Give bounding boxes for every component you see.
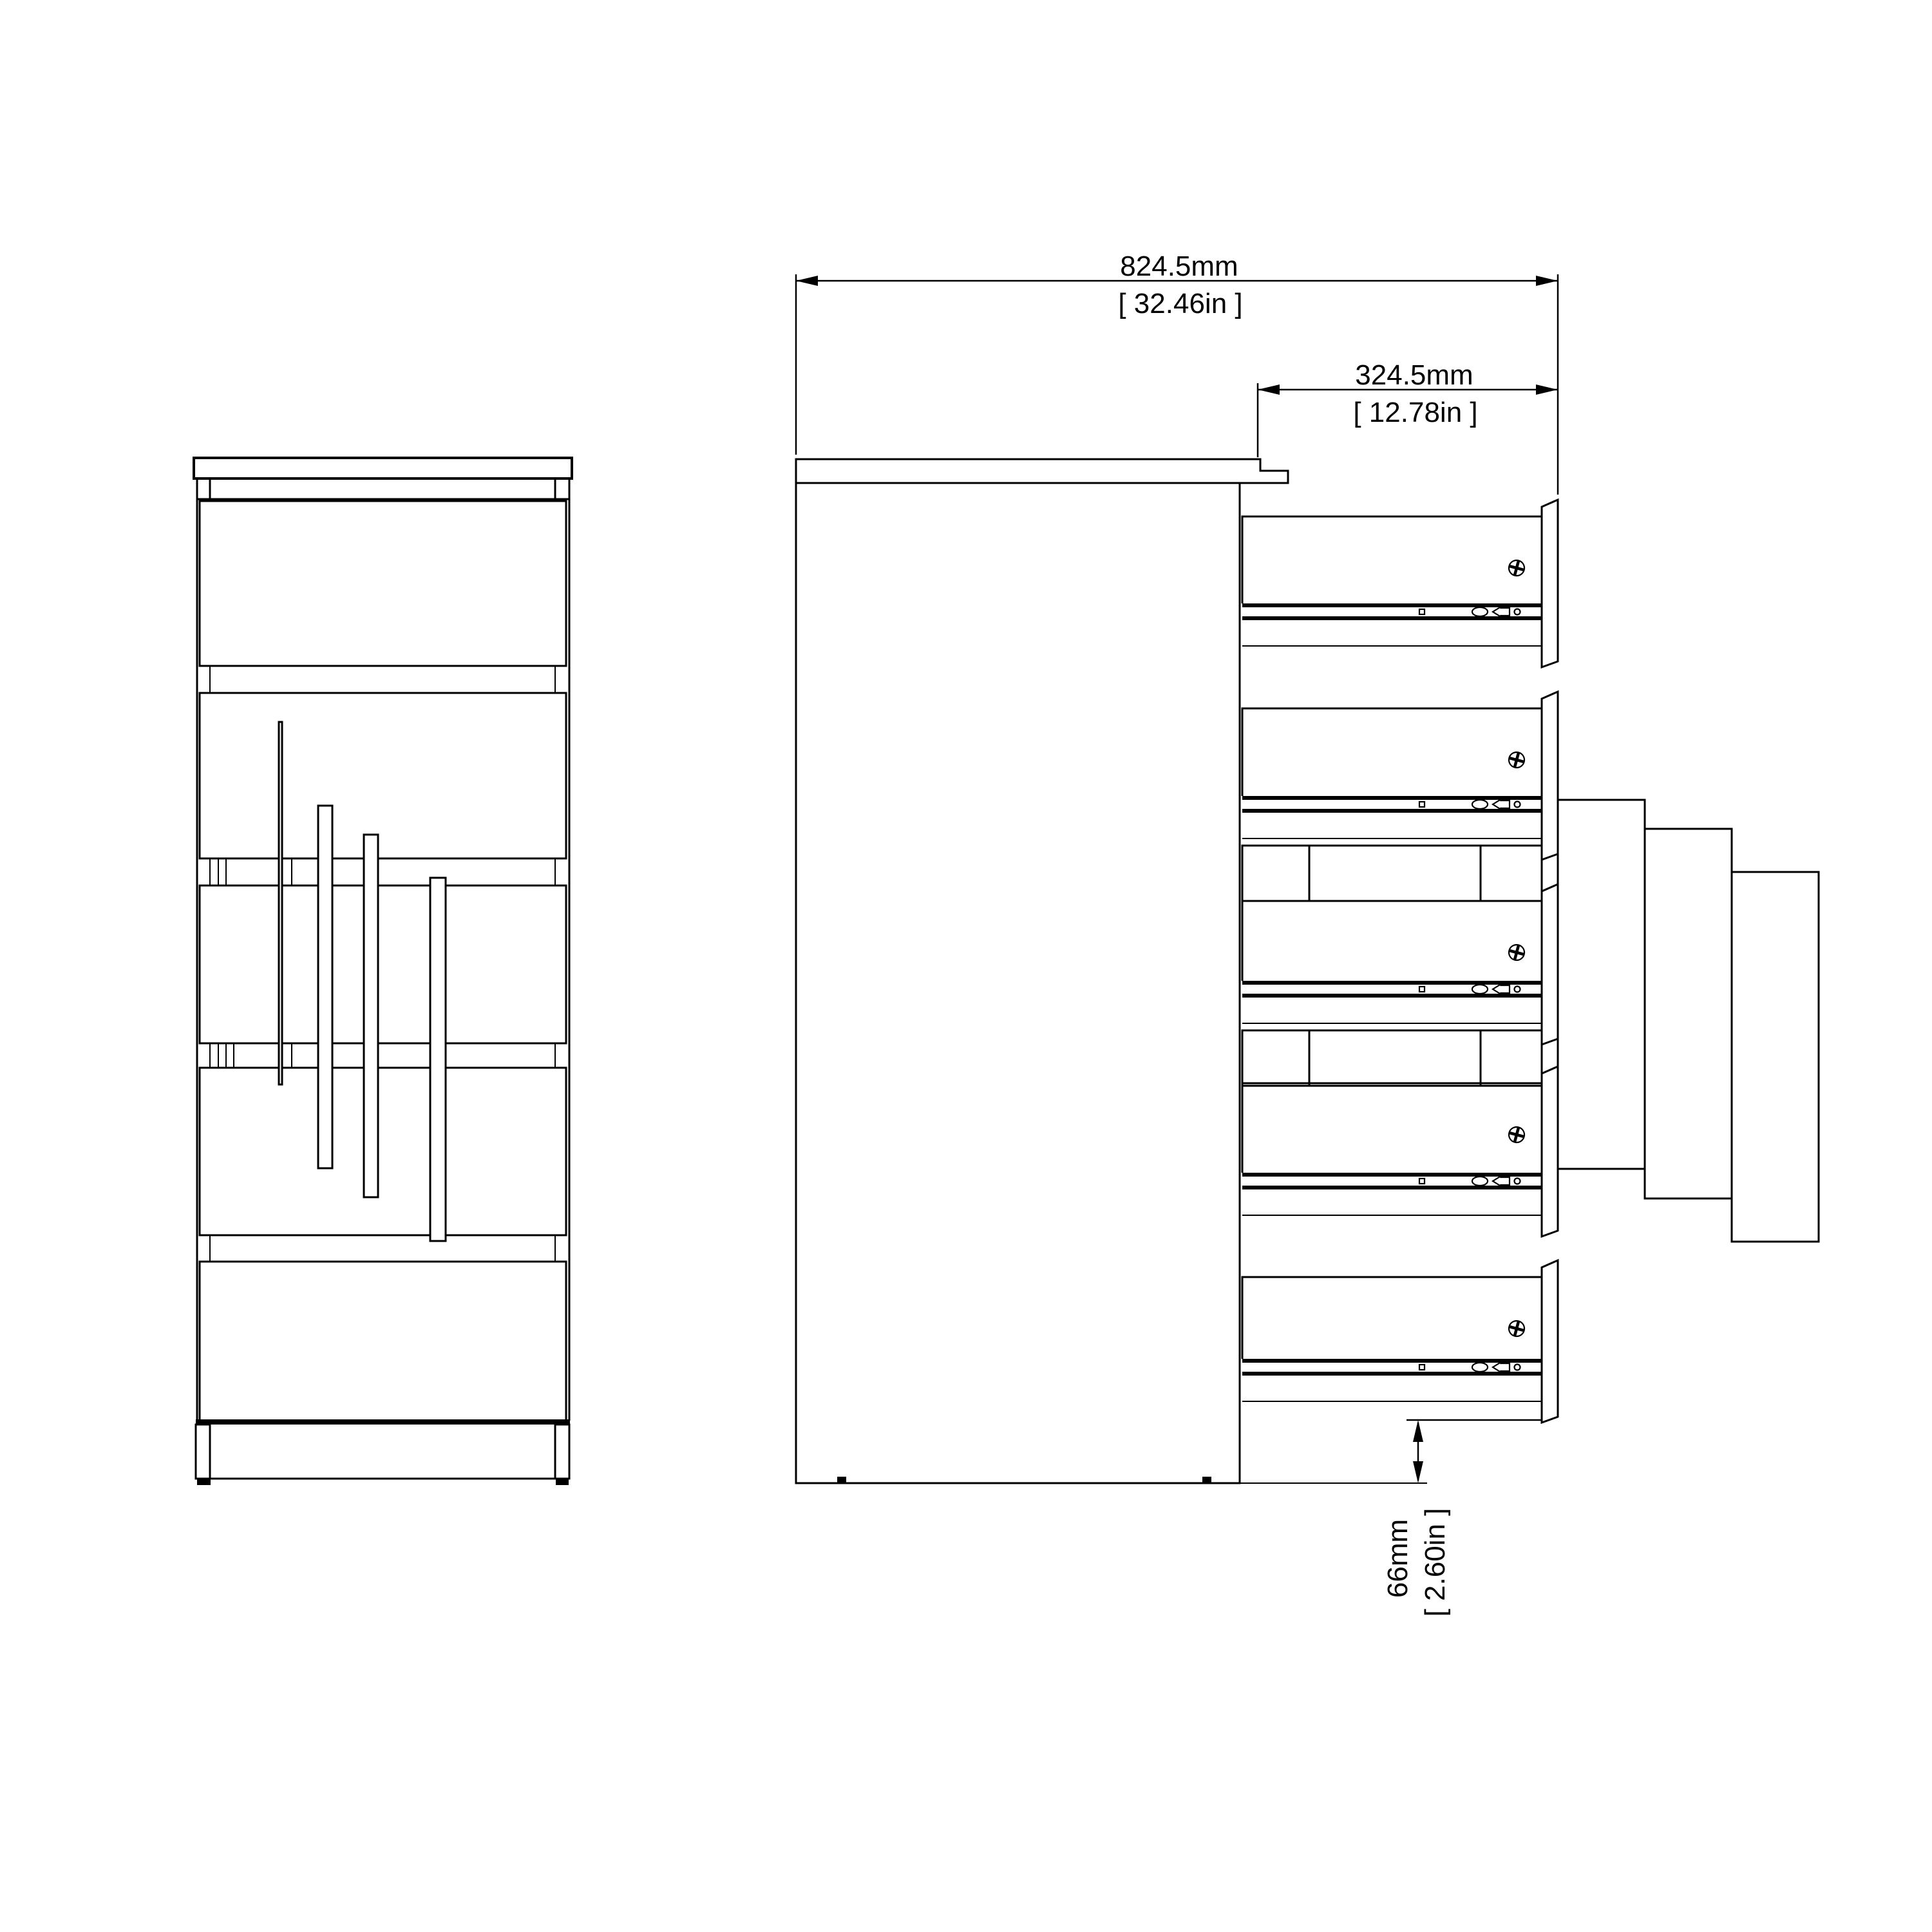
slide-stop-icon (1419, 1365, 1425, 1370)
front-drawer-face-3 (200, 885, 566, 1043)
drawer-front-edge (1542, 1066, 1558, 1236)
drawer-projection-panel-1 (1558, 800, 1645, 1169)
side-drawer-2 (1242, 692, 1558, 860)
drawer-box (1242, 708, 1542, 796)
front-gap-band-4 (210, 1235, 555, 1262)
side-cross-rail-assembly-1 (1242, 846, 1542, 901)
drawer-box (1242, 516, 1542, 603)
cam-lock-icon (1507, 1319, 1526, 1338)
front-top-panel (194, 458, 572, 478)
drawer-front-edge (1542, 500, 1558, 667)
drawer-front-edge (1542, 1260, 1558, 1423)
drawer-slide-rail (1242, 796, 1542, 813)
side-view (796, 459, 1819, 1483)
cam-lock-icon (1507, 1125, 1526, 1144)
front-gap-band-3 (210, 1043, 555, 1068)
foot-glide-icon (556, 1479, 569, 1485)
side-drawer-3 (1242, 884, 1558, 1045)
front-drawer-face-1 (200, 501, 566, 666)
slide-roller-icon (1472, 985, 1488, 994)
cam-lock-icon (1507, 750, 1526, 769)
dimension-drawer-extension: 324.5mm [ 12.78in ] (1258, 359, 1558, 457)
front-handle-bar-2 (318, 806, 332, 1168)
slide-screw-icon (1515, 987, 1520, 992)
drawer-box (1242, 1083, 1542, 1173)
drawer-slide-rail (1242, 1173, 1542, 1189)
side-cabinet-panel (796, 483, 1240, 1483)
front-handle-bar-3 (364, 835, 378, 1197)
dimension-arrow-icon (1413, 1420, 1423, 1442)
dimension-label-imperial: [ 2.60in ] (1419, 1508, 1451, 1617)
front-gap-band-2 (210, 858, 555, 885)
dimension-label-metric: 66mm (1382, 1519, 1414, 1598)
front-handle-bar-1 (279, 722, 282, 1084)
dimension-floor-clearance: 66mm [ 2.60in ] (1382, 1420, 1542, 1616)
side-drawer-4 (1242, 1066, 1558, 1236)
foot-glide-icon (197, 1479, 211, 1485)
technical-drawing-canvas: 824.5mm [ 32.46in ] 324.5mm [ 12.78in ] … (0, 0, 1932, 1932)
side-drawer-5 (1242, 1260, 1558, 1423)
slide-stop-icon (1419, 1179, 1425, 1184)
slide-screw-icon (1515, 802, 1520, 808)
side-top-panel (796, 459, 1288, 483)
side-cross-rail-assembly-2 (1242, 1030, 1542, 1086)
slide-stop-icon (1419, 802, 1425, 807)
dimension-arrow-icon (1413, 1461, 1423, 1483)
drawer-box (1242, 1277, 1542, 1359)
slide-roller-icon (1472, 607, 1488, 616)
foot-glide-icon (1202, 1477, 1211, 1483)
cam-lock-icon (1507, 943, 1526, 961)
drawer-projection-panel-2 (1645, 829, 1732, 1198)
foot-glide-icon (837, 1477, 846, 1483)
dimension-label-metric: 824.5mm (1120, 251, 1238, 282)
front-bottom-rail-edge (196, 1419, 570, 1425)
front-drawer-face-2 (200, 693, 566, 858)
front-drawer-face-5 (200, 1262, 566, 1421)
slide-stop-icon (1419, 987, 1425, 992)
drawer-slide-rail (1242, 1359, 1542, 1376)
dimension-arrow-icon (1536, 384, 1558, 395)
front-handle-bar-4 (430, 878, 446, 1241)
side-drawer-1 (1242, 500, 1558, 667)
slide-screw-icon (1515, 609, 1520, 615)
dimension-arrow-icon (1536, 276, 1558, 286)
slide-stop-icon (1419, 609, 1425, 614)
front-left-leg (196, 1425, 210, 1479)
drawer-front-edge (1542, 692, 1558, 860)
drawer-slide-rail (1242, 603, 1542, 620)
dimension-arrow-icon (796, 276, 818, 286)
front-drawer-face-4 (200, 1068, 566, 1235)
drawer-box (1242, 901, 1542, 981)
drawer-projection-panel-3 (1732, 872, 1819, 1242)
slide-screw-icon (1515, 1179, 1520, 1184)
drawer-slide-rail (1242, 981, 1542, 998)
slide-screw-icon (1515, 1365, 1520, 1370)
dimension-label-imperial: [ 12.78in ] (1353, 397, 1477, 428)
front-gap-band-1 (210, 666, 555, 693)
cam-lock-icon (1507, 558, 1526, 577)
front-view (194, 458, 572, 1485)
front-right-leg (555, 1425, 569, 1479)
slide-roller-icon (1472, 1177, 1488, 1186)
slide-roller-icon (1472, 800, 1488, 809)
dimension-arrow-icon (1258, 384, 1280, 395)
slide-roller-icon (1472, 1363, 1488, 1372)
drawer-front-edge (1542, 884, 1558, 1045)
dimension-label-imperial: [ 32.46in ] (1118, 288, 1242, 319)
dimension-label-metric: 324.5mm (1355, 359, 1473, 391)
